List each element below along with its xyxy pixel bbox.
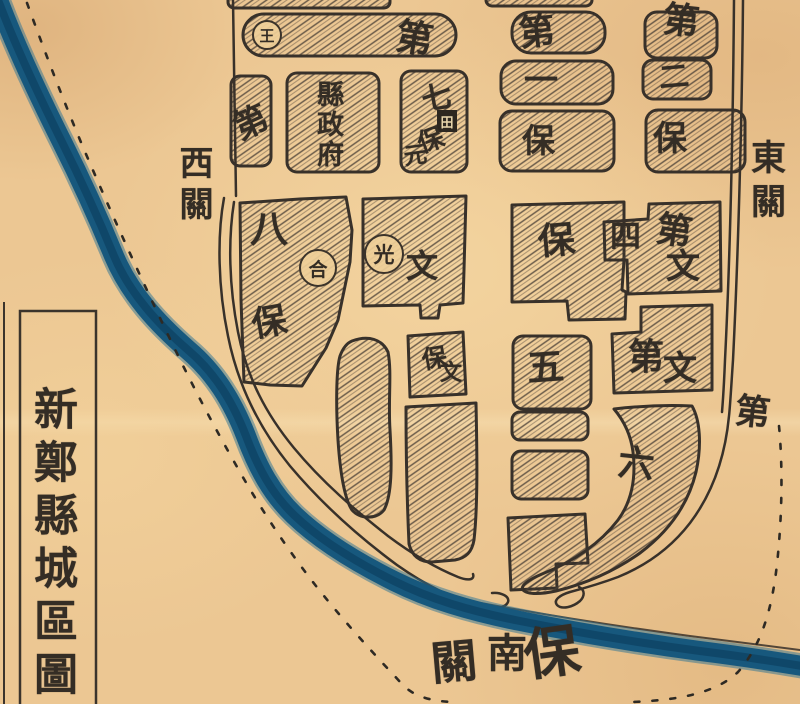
label-ward5-wen: 文: [663, 352, 697, 386]
block-top-sliver-west: [228, 0, 390, 8]
map-title: 新鄭縣城區圖: [27, 386, 73, 704]
circle-guang-symbol: 光: [364, 234, 404, 274]
block-top-sliver-east: [486, 0, 592, 6]
label-ward8-bao: 保: [249, 303, 290, 344]
label-bar-di: 第: [393, 17, 435, 59]
label-ward4-num: 四: [610, 222, 641, 253]
label-ward7-yuan: 元: [403, 144, 429, 170]
label-west-gate: 西關: [176, 145, 210, 227]
label-south-gate-bao: 保: [520, 622, 583, 685]
city-wall-northwest-line: [233, 0, 236, 196]
label-ward8-num: 八: [250, 210, 288, 248]
block-ward1-bao: [500, 111, 614, 171]
circle-wang-symbol: 王: [252, 20, 282, 50]
label-ward2-di: 第: [661, 2, 701, 42]
label-ward2-num: 二: [658, 62, 691, 95]
label-baowen-wen: 文: [440, 363, 462, 385]
label-ward1-bao: 保: [522, 124, 555, 157]
label-south-gate-guan: 關: [429, 637, 479, 687]
label-ward2-bao: 保: [653, 122, 687, 156]
block-mid-small: [512, 451, 588, 499]
block-banana: [337, 338, 391, 517]
label-ward4-bao: 保: [536, 220, 576, 260]
circle-he-symbol: 合: [299, 249, 337, 287]
block-thin: [512, 412, 588, 440]
label-east-gate: 東關: [747, 139, 782, 227]
label-ward5-di: 第: [628, 340, 664, 376]
label-ward6-num: 六: [616, 445, 656, 485]
label-county-government: 縣政府: [314, 80, 341, 170]
label-ward6-di: 第: [733, 394, 771, 432]
east-road-line-inner: [722, 0, 734, 412]
block-tall-south: [406, 403, 477, 562]
label-ward1-num: 一: [524, 64, 558, 98]
label-wenguang-wen: 文: [406, 250, 438, 282]
label-ward5-num: 五: [526, 348, 565, 387]
label-ward4-wen: 文: [666, 250, 700, 284]
label-ward1-di: 第: [517, 13, 557, 53]
